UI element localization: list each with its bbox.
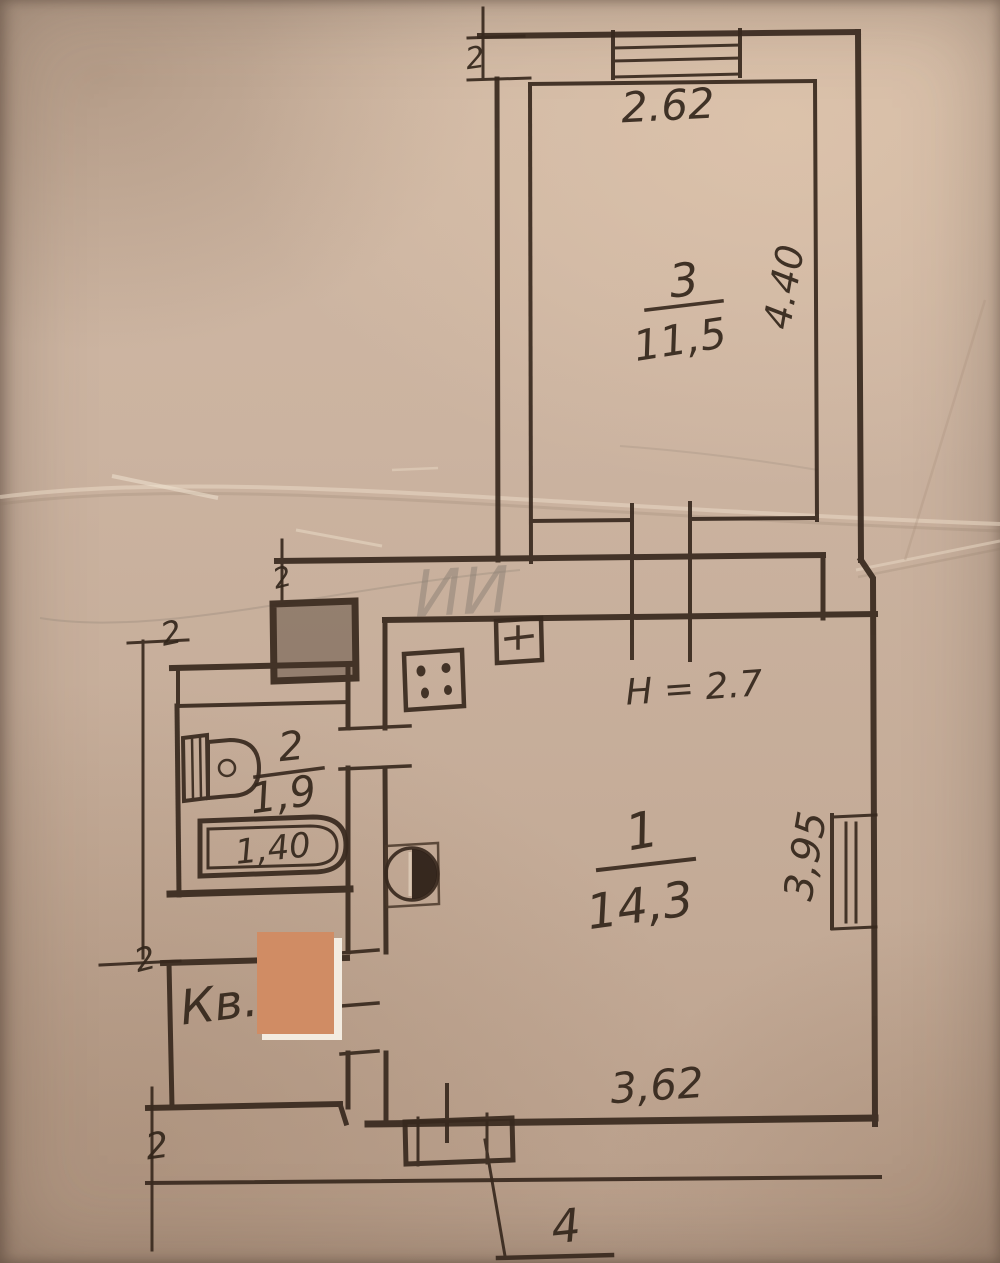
- room2-area-label: 1,9: [246, 766, 319, 824]
- toilet-icon: [183, 735, 259, 801]
- room3-area-label: 11,5: [630, 308, 730, 371]
- bathtub-length-label: 1,40: [233, 825, 312, 873]
- bottom-left-marker-label: 2: [143, 1125, 171, 1169]
- apartment-number-redaction: [257, 932, 342, 1040]
- room3-number-label: 3: [667, 252, 702, 309]
- ceiling-height-label: Н = 2.7: [624, 663, 764, 713]
- stove-icon: [404, 650, 464, 710]
- apartment-prefix-label: Кв.: [177, 971, 261, 1036]
- dim-room1-width-label: 3,95: [776, 808, 837, 904]
- mid-marker-label: 2: [269, 559, 294, 595]
- sink-icon: [386, 843, 439, 907]
- floorplan-drawing: ИИ: [0, 0, 1000, 1263]
- room2-number-label: 2: [276, 723, 306, 771]
- floorplan-photo: ИИ: [0, 0, 1000, 1263]
- window-right: [832, 815, 876, 929]
- room1-fraction-line: [598, 859, 694, 870]
- left-dim-marker-bottom-label: 2: [131, 938, 160, 980]
- room1-area-label: 14,3: [583, 871, 697, 941]
- labels: 2.62 2 3 11,5 4.40 Н = 2.7 1 14,3 3,95 3…: [131, 40, 837, 1255]
- dim-room3-height-label: 4.40: [755, 242, 813, 333]
- room1-number-label: 1: [621, 800, 662, 863]
- dim-room1-bottom-label: 3,62: [609, 1058, 706, 1113]
- porch-number-label: 4: [549, 1198, 584, 1255]
- dim-room3-width-label: 2.62: [620, 79, 716, 133]
